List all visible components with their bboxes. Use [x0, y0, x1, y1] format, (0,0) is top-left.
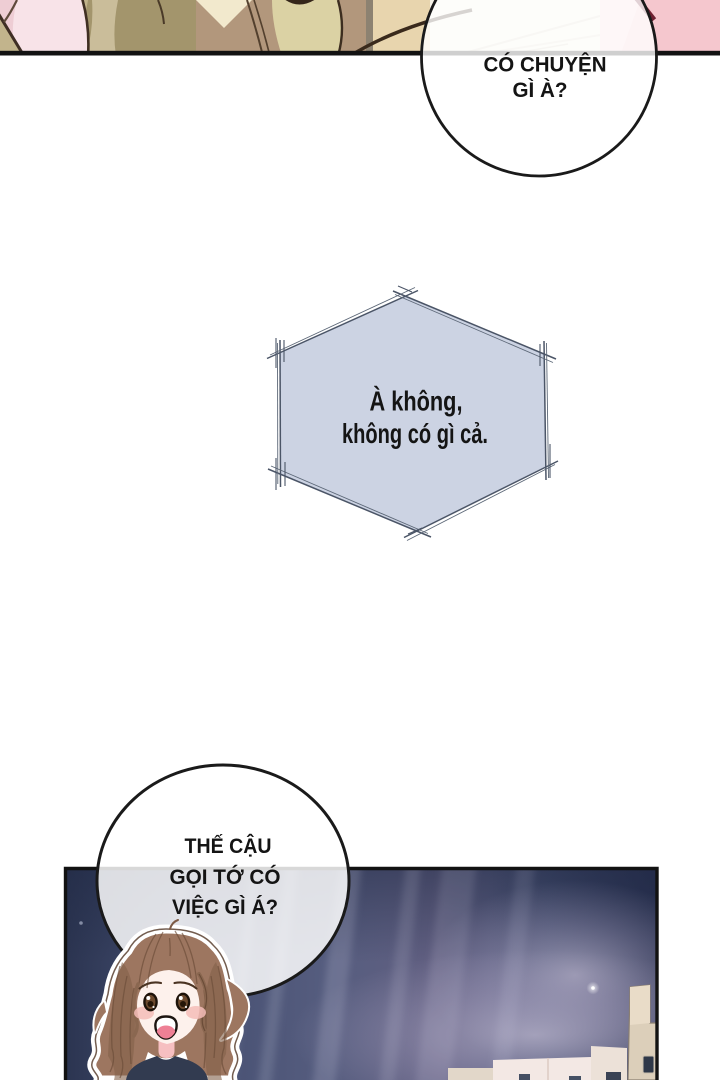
- svg-text:không có gì cả.: không có gì cả.: [342, 418, 488, 449]
- svg-text:GÌ À?: GÌ À?: [513, 79, 568, 102]
- svg-text:CÓ CHUYỆN: CÓ CHUYỆN: [484, 53, 607, 77]
- svg-text:GỌI TỚ CÓ: GỌI TỚ CÓ: [170, 865, 281, 889]
- svg-text:VIỆC GÌ Á?: VIỆC GÌ Á?: [172, 895, 278, 919]
- svg-text:À không,: À không,: [370, 386, 463, 417]
- svg-text:THẾ CẬU: THẾ CẬU: [185, 834, 272, 858]
